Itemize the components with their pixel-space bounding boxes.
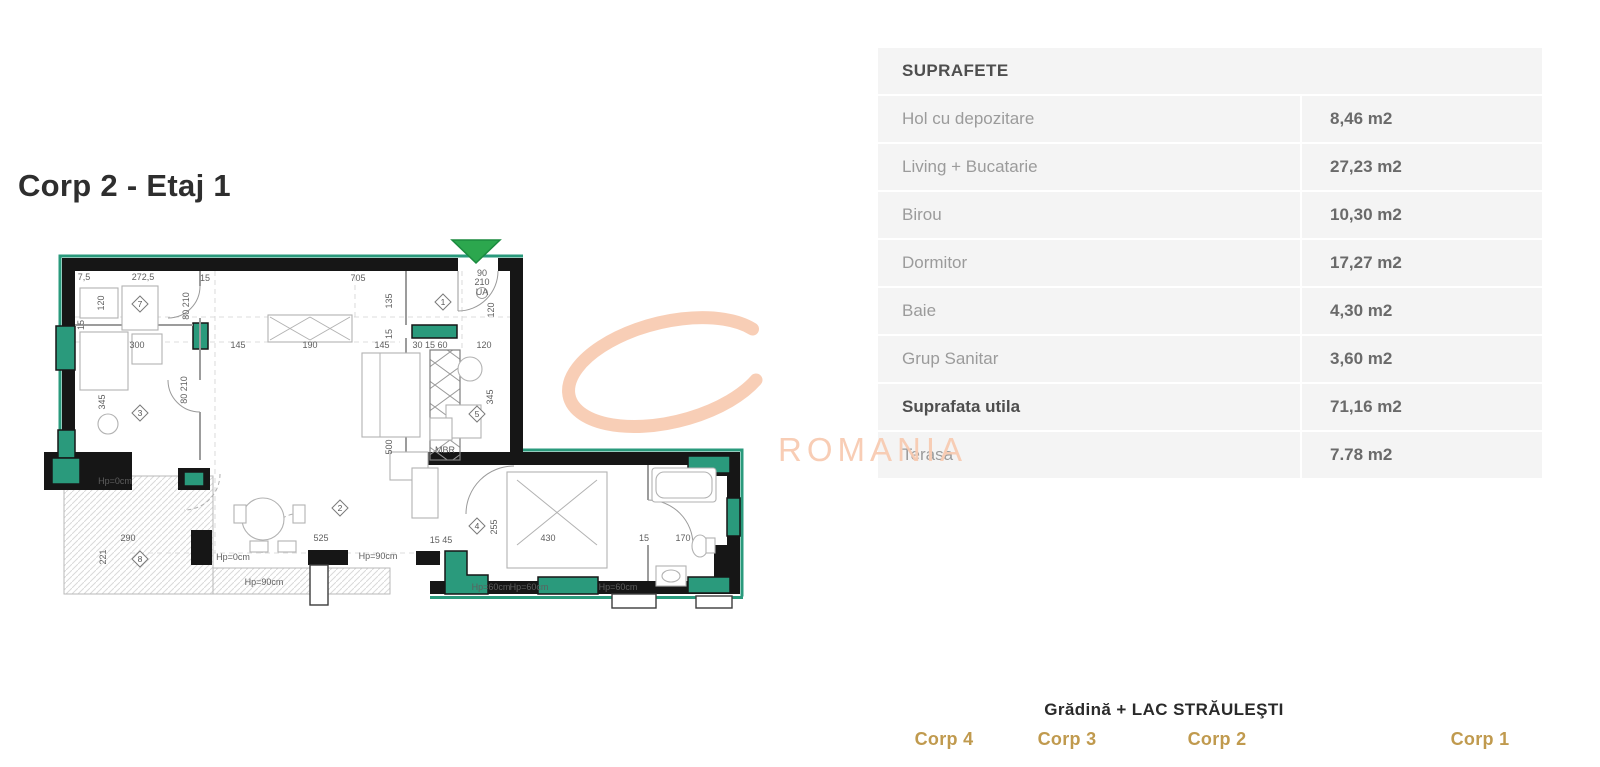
svg-text:5: 5 <box>475 409 480 419</box>
dimension-label: 120 <box>96 295 106 310</box>
area-row-value: 8,46 m2 <box>1302 96 1542 142</box>
area-row-value: 7.78 m2 <box>1302 432 1542 478</box>
dimension-label: 221 <box>98 549 108 564</box>
room-number: 2 <box>332 500 348 516</box>
page-title: Corp 2 - Etaj 1 <box>18 168 231 204</box>
area-row: Grup Sanitar3,60 m2 <box>878 336 1542 384</box>
svg-text:8: 8 <box>138 554 143 564</box>
dimension-label: 210 <box>474 277 489 287</box>
svg-text:3: 3 <box>138 408 143 418</box>
room-number: 3 <box>132 405 148 421</box>
dimension-label: 272,5 <box>132 272 155 282</box>
dimension-label: Hp=0cm <box>98 476 132 486</box>
area-row-value: 27,23 m2 <box>1302 144 1542 190</box>
area-row: Baie4,30 m2 <box>878 288 1542 336</box>
dimension-label: 15 <box>76 320 86 330</box>
area-row-label: Suprafata utila <box>878 384 1302 430</box>
dimension-label: 120 <box>476 340 491 350</box>
area-row: Birou10,30 m2 <box>878 192 1542 240</box>
dimension-label: 15 <box>384 329 394 339</box>
dimension-label: 135 <box>384 293 394 308</box>
room-number: 1 <box>435 294 451 310</box>
area-row-value: 4,30 m2 <box>1302 288 1542 334</box>
dimension-label: 430 <box>540 533 555 543</box>
site-caption: Grădină + LAC STRĂULEŞTI <box>1044 700 1284 720</box>
area-row-label: Hol cu depozitare <box>878 96 1302 142</box>
dimension-label: UA <box>476 287 489 297</box>
area-row-label: Living + Bucatarie <box>878 144 1302 190</box>
dimension-label: Hp=60cm <box>510 582 549 592</box>
area-row: Dormitor17,27 m2 <box>878 240 1542 288</box>
terrace-area <box>64 476 390 594</box>
corp-label-corp-1: Corp 1 <box>1451 729 1510 750</box>
area-row-value: 10,30 m2 <box>1302 192 1542 238</box>
page: Corp 2 - Etaj 1 <box>0 0 1600 767</box>
dimension-label: 525 <box>313 533 328 543</box>
dimension-label: 170 <box>675 533 690 543</box>
area-row-label: Dormitor <box>878 240 1302 286</box>
svg-text:1: 1 <box>441 297 446 307</box>
corp-label-corp-3: Corp 3 <box>1038 729 1097 750</box>
area-row: Suprafata utila71,16 m2 <box>878 384 1542 432</box>
dimension-label: 145 <box>230 340 245 350</box>
area-row-value: 17,27 m2 <box>1302 240 1542 286</box>
dimension-label: 15 <box>639 533 649 543</box>
dimension-label: Hp=60cm <box>599 582 638 592</box>
dimension-label: 15 45 <box>430 535 453 545</box>
area-row-label: Terasa <box>878 432 1302 478</box>
areas-table-header: SUPRAFETE <box>878 48 1542 96</box>
dimension-label: 300 <box>129 340 144 350</box>
dimension-label: 290 <box>120 533 135 543</box>
dimension-label: Hp=90cm <box>245 577 284 587</box>
entrance-triangle-icon <box>452 240 500 263</box>
corp-label-corp-4: Corp 4 <box>915 729 974 750</box>
area-row-value: 3,60 m2 <box>1302 336 1542 382</box>
dimension-label: 145 <box>374 340 389 350</box>
dimension-label: 7,5 <box>78 272 91 282</box>
svg-text:4: 4 <box>475 521 480 531</box>
area-row-label: Grup Sanitar <box>878 336 1302 382</box>
dimension-label: Hp=60cm <box>472 582 511 592</box>
area-row-value: 71,16 m2 <box>1302 384 1542 430</box>
dimension-label: 80 210 <box>179 376 189 404</box>
svg-text:2: 2 <box>338 503 343 513</box>
room-number: 4 <box>469 518 485 534</box>
areas-table-body: Hol cu depozitare8,46 m2Living + Bucatar… <box>878 96 1542 478</box>
area-row: Terasa7.78 m2 <box>878 432 1542 478</box>
dimension-label: Hp=90cm <box>359 551 398 561</box>
dimension-label: 345 <box>97 394 107 409</box>
dimension-label: 80 210 <box>181 292 191 320</box>
area-row-label: Baie <box>878 288 1302 334</box>
areas-table: SUPRAFETE Hol cu depozitare8,46 m2Living… <box>878 48 1542 478</box>
area-row-label: Birou <box>878 192 1302 238</box>
dimension-label: 345 <box>485 389 495 404</box>
area-row: Living + Bucatarie27,23 m2 <box>878 144 1542 192</box>
area-row: Hol cu depozitare8,46 m2 <box>878 96 1542 144</box>
dimension-label: 705 <box>350 273 365 283</box>
dimension-label: MBR <box>435 445 456 455</box>
dimension-label: 30 15 60 <box>412 340 447 350</box>
dimension-label: 500 <box>384 439 394 454</box>
corp-label-corp-2: Corp 2 <box>1188 729 1247 750</box>
dimension-label: Hp=0cm <box>216 552 250 562</box>
dimension-label: 15 <box>200 273 210 283</box>
svg-text:7: 7 <box>138 299 143 309</box>
dimension-label: 120 <box>486 302 496 317</box>
dimension-label: 190 <box>302 340 317 350</box>
dimension-label: 255 <box>489 519 499 534</box>
floor-plan: 7,5272,51570512013590210UA12015300145190… <box>30 225 760 637</box>
